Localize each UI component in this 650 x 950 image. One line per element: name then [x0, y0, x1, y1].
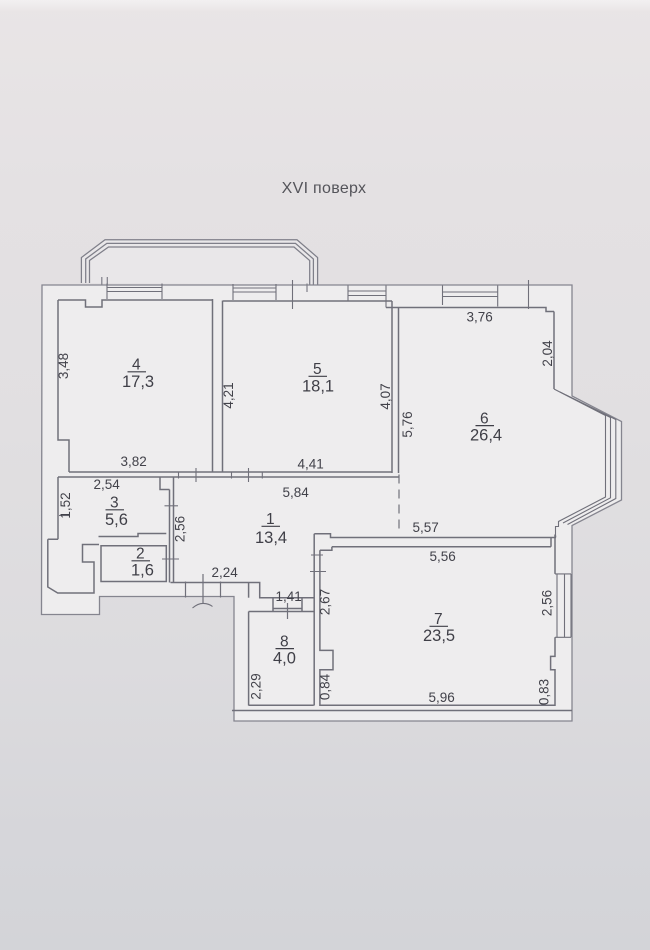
svg-text:2,29: 2,29 [249, 673, 264, 699]
svg-text:26,4: 26,4 [470, 427, 502, 445]
svg-text:3,82: 3,82 [121, 454, 147, 469]
svg-text:4,41: 4,41 [298, 457, 324, 472]
svg-text:2,24: 2,24 [212, 565, 239, 580]
svg-text:17,3: 17,3 [122, 373, 154, 391]
svg-text:1,6: 1,6 [131, 562, 154, 580]
svg-text:13,4: 13,4 [255, 529, 287, 547]
svg-text:3,48: 3,48 [56, 353, 71, 379]
svg-text:0,84: 0,84 [318, 673, 333, 700]
svg-text:4,0: 4,0 [273, 650, 296, 668]
svg-text:5,96: 5,96 [429, 690, 455, 705]
svg-text:3: 3 [110, 495, 119, 512]
svg-text:5,57: 5,57 [413, 520, 439, 535]
svg-text:2,04: 2,04 [540, 340, 555, 367]
svg-text:XVI поверх: XVI поверх [282, 180, 367, 197]
svg-text:0,83: 0,83 [537, 679, 552, 705]
svg-text:4,21: 4,21 [221, 382, 236, 408]
svg-text:2: 2 [136, 546, 145, 563]
svg-text:5,76: 5,76 [400, 411, 415, 437]
svg-text:4: 4 [132, 357, 141, 374]
svg-text:5,56: 5,56 [430, 549, 456, 564]
svg-text:5: 5 [313, 361, 322, 378]
svg-text:8: 8 [280, 633, 289, 650]
svg-text:6: 6 [480, 410, 489, 427]
svg-text:3,76: 3,76 [467, 310, 493, 325]
svg-text:5,6: 5,6 [105, 511, 128, 529]
svg-text:7: 7 [434, 611, 443, 628]
svg-text:1,52: 1,52 [58, 492, 73, 518]
svg-text:1,41: 1,41 [276, 589, 302, 604]
svg-text:2,54: 2,54 [94, 477, 121, 492]
svg-text:5,84: 5,84 [283, 485, 310, 500]
svg-text:2,67: 2,67 [318, 589, 333, 615]
svg-text:1: 1 [266, 511, 275, 528]
svg-text:2,56: 2,56 [540, 590, 555, 616]
svg-text:4,07: 4,07 [378, 383, 393, 409]
svg-text:2,56: 2,56 [173, 516, 188, 542]
svg-text:18,1: 18,1 [302, 378, 334, 396]
svg-text:23,5: 23,5 [423, 627, 455, 645]
